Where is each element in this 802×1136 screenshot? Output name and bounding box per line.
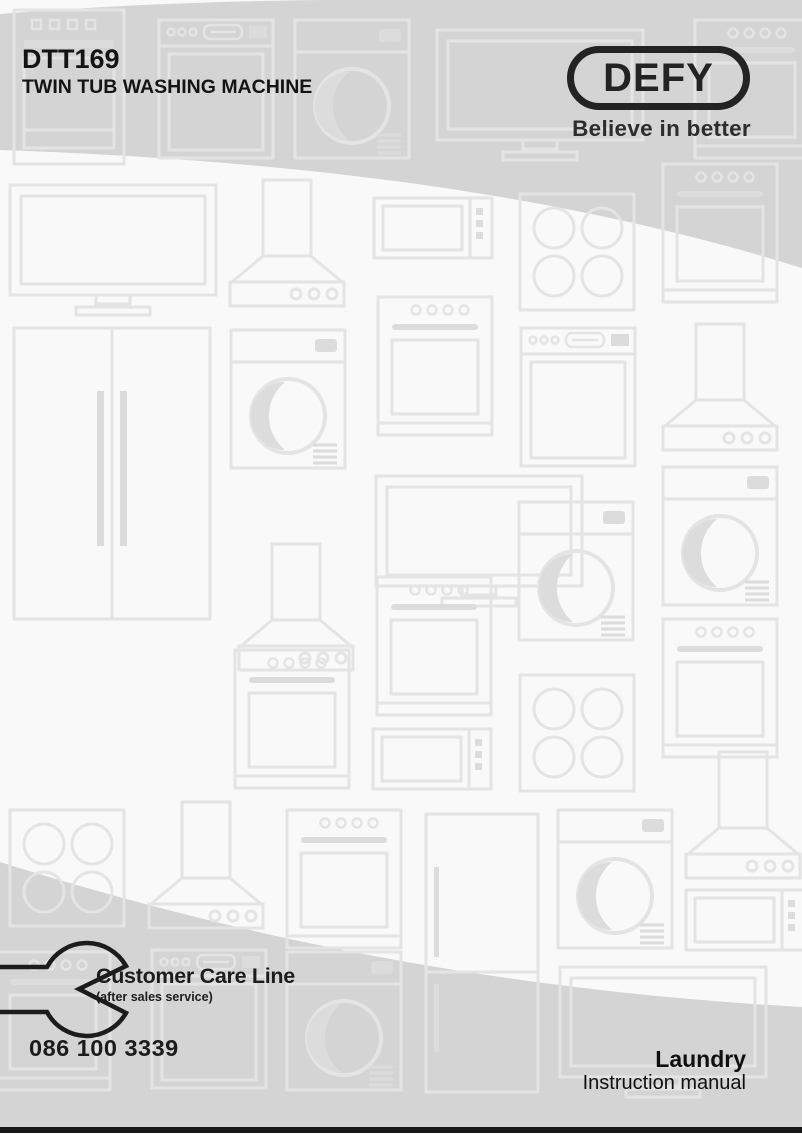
footer-doc-type: Instruction manual	[583, 1072, 746, 1095]
customer-care-subtitle: (after sales service)	[96, 990, 295, 1005]
customer-care-phone: 086 100 3339	[29, 1035, 179, 1062]
product-name: TWIN TUB WASHING MACHINE	[22, 75, 312, 99]
footer-block: Laundry Instruction manual	[583, 1046, 746, 1095]
manual-cover-page: { "header": { "model": "DTT169", "subtit…	[0, 0, 802, 1136]
brand-tagline: Believe in better	[572, 116, 751, 142]
customer-care-block: Customer Care Line (after sales service)	[96, 964, 295, 1005]
title-block: DTT169 TWIN TUB WASHING MACHINE	[22, 44, 312, 99]
customer-care-title: Customer Care Line	[96, 964, 295, 988]
footer-category: Laundry	[583, 1046, 746, 1072]
defy-logo-text: DEFY	[603, 56, 714, 101]
defy-logo: DEFY	[567, 46, 750, 110]
model-number: DTT169	[22, 44, 312, 75]
